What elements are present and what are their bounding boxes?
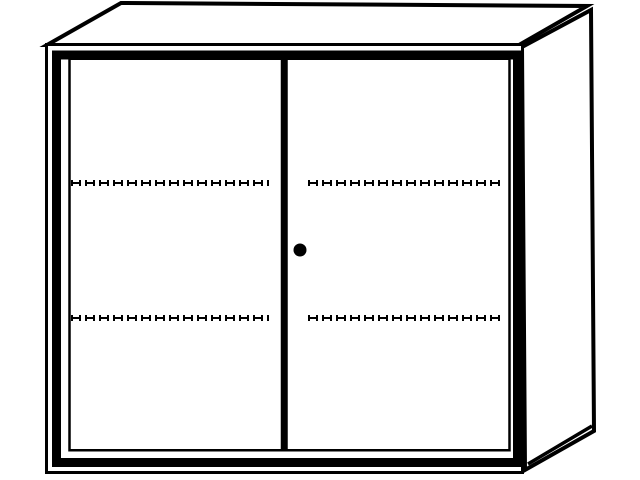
drawing-canvas — [0, 0, 640, 480]
cabinet-side-panel — [522, 10, 594, 470]
cabinet-top-face — [47, 3, 587, 45]
lock-knob-icon — [294, 244, 307, 257]
cabinet-line-drawing — [0, 0, 640, 480]
